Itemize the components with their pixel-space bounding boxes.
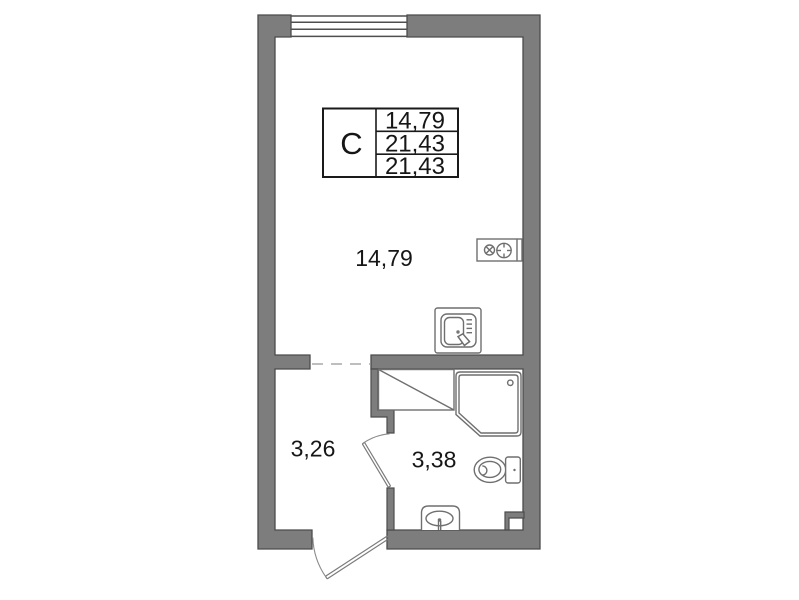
svg-text:3,26: 3,26 bbox=[291, 436, 336, 462]
svg-text:С: С bbox=[340, 126, 362, 161]
svg-text:3,38: 3,38 bbox=[412, 447, 457, 473]
svg-text:21,43: 21,43 bbox=[385, 153, 445, 180]
svg-text:14,79: 14,79 bbox=[355, 245, 413, 271]
